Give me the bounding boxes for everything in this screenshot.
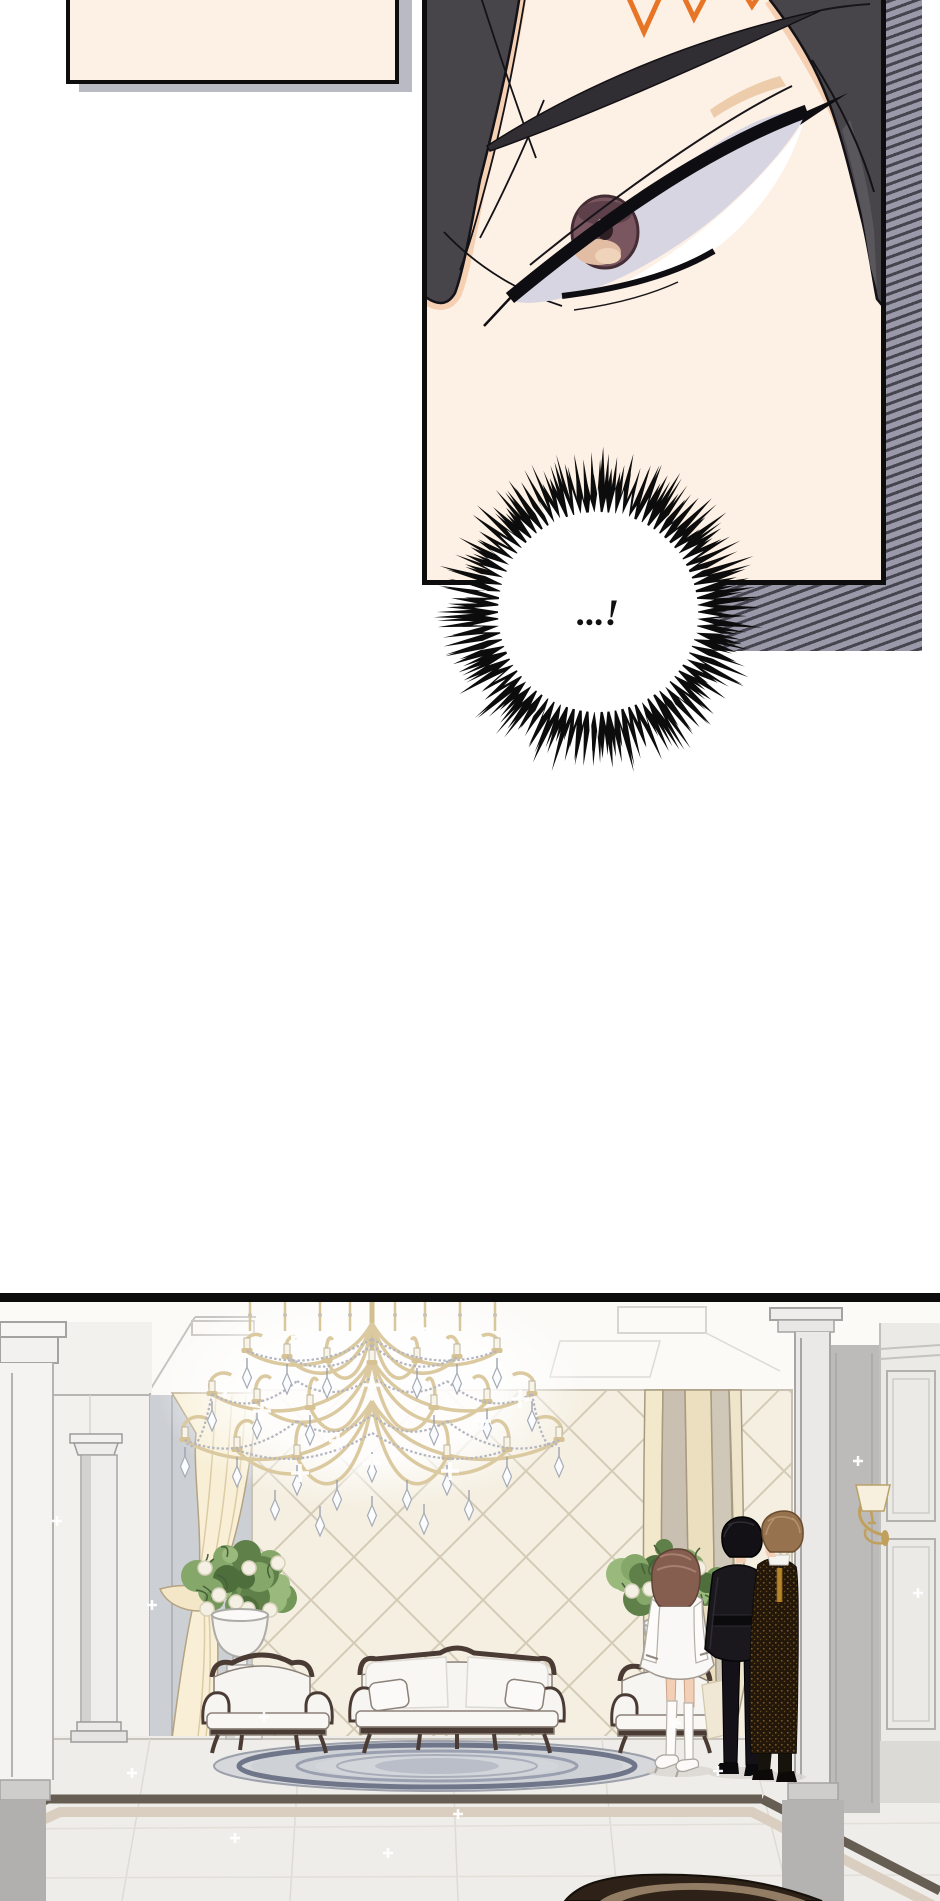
svg-text:...!: ...! — [577, 593, 619, 634]
